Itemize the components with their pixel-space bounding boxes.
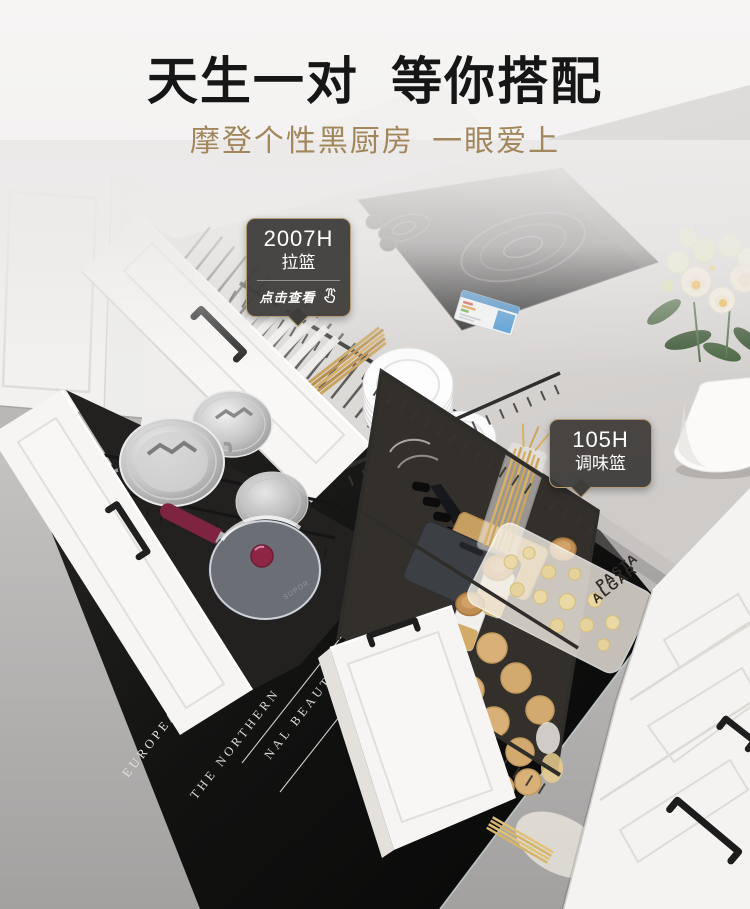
lid-knob <box>251 545 273 567</box>
product-model: 2007H <box>247 226 350 252</box>
click-hand-icon <box>318 285 339 308</box>
photo-top-fade <box>0 140 750 375</box>
page-title: 天生一对 等你搭配 <box>0 40 750 114</box>
product-name: 拉篮 <box>247 252 350 274</box>
promo-banner: EUROPEAN ART DESIGN STYLE THE NORTHERN N… <box>0 0 750 909</box>
page-subtitle: 摩登个性黑厨房 一眼爱上 <box>0 116 750 160</box>
callout-pull-basket[interactable]: 2007H 拉篮 点击查看 <box>246 218 351 317</box>
callout-divider <box>257 280 340 281</box>
product-name: 调味篮 <box>550 453 651 487</box>
product-model: 105H <box>550 427 651 453</box>
callout-spice-basket: 105H 调味篮 <box>549 419 652 488</box>
cta-label[interactable]: 点击查看 <box>259 287 315 306</box>
